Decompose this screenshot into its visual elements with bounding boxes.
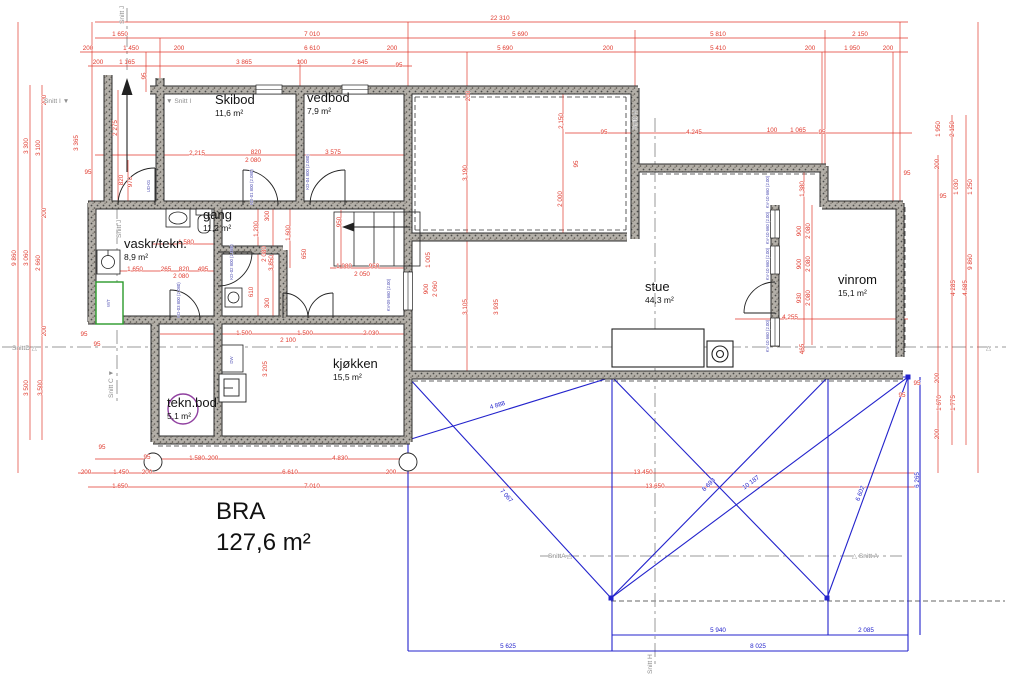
room-name: tekn.bod bbox=[167, 395, 217, 410]
dimension-label: 5 410 bbox=[710, 45, 726, 52]
section-marker-label: ▼ Snitt I bbox=[166, 98, 191, 105]
roof-node bbox=[906, 375, 911, 380]
dimension-label: 2 080 bbox=[805, 290, 812, 306]
dimension-label: 13 450 bbox=[633, 469, 653, 476]
dimension-label: 300 bbox=[264, 297, 271, 308]
dimension-label: 650 bbox=[301, 248, 308, 259]
roof-dimension-label: 8 025 bbox=[750, 643, 766, 650]
fixtures bbox=[96, 78, 780, 471]
section-marker-label: △ Snitt A bbox=[852, 553, 879, 560]
entry-arrow-icon bbox=[122, 78, 133, 172]
fixture-label: KV-10 660 (2.00) bbox=[765, 211, 770, 244]
dimension-label: 2 030 bbox=[363, 330, 379, 337]
dimension-label: 200 bbox=[603, 45, 614, 52]
dimension-label: 3 935 bbox=[493, 299, 500, 315]
dimension-label: 2 215 bbox=[189, 150, 205, 157]
dimension-label: 820 bbox=[179, 266, 190, 273]
dimension-label: 95 bbox=[98, 444, 106, 451]
fixture-label: UD-01 bbox=[146, 179, 151, 192]
dimension-label: 1 380 bbox=[799, 181, 806, 197]
dimension-label: 2 050 bbox=[354, 271, 370, 278]
dimension-label: 200 bbox=[142, 469, 153, 476]
dimension-label: 95 bbox=[141, 72, 148, 80]
dimension-label: 1 065 bbox=[790, 127, 806, 134]
section-marker-label: Snitt I ▼ bbox=[44, 98, 69, 105]
dimension-label: 200 bbox=[81, 469, 92, 476]
dimension-label: 1 650 bbox=[127, 266, 143, 273]
dimension-label: 1 950 bbox=[935, 121, 942, 137]
dimension-label: 1 450 bbox=[123, 45, 139, 52]
dimension-label: 5 690 bbox=[512, 31, 528, 38]
dimension-label: 3 300 bbox=[23, 138, 30, 154]
dimension-label: 900 bbox=[423, 283, 430, 294]
dimension-label: 2 060 bbox=[432, 281, 439, 297]
floor-plan-canvas: 22 3101 6507 0105 6905 8102 1502001 4502… bbox=[0, 0, 1011, 687]
room-area: 11,6 m² bbox=[215, 108, 243, 118]
dimension-label: 95 bbox=[573, 160, 580, 168]
dimension-label: 7 010 bbox=[304, 31, 320, 38]
dimension-label: 95 bbox=[898, 392, 906, 399]
fixture-label: W/T bbox=[106, 299, 111, 307]
dimension-label: 2 150 bbox=[558, 113, 565, 129]
dimension-label: 1 500 bbox=[236, 330, 252, 337]
dimension-label: 200 bbox=[934, 158, 941, 169]
bra-area-block: BRA 127,6 m² bbox=[216, 496, 311, 558]
dimension-label: 200 bbox=[83, 45, 94, 52]
dimension-label: 820 bbox=[251, 149, 262, 156]
dimension-label: 1 005 bbox=[425, 252, 432, 268]
room-area: 8,9 m² bbox=[124, 252, 148, 262]
dimension-label: 7 010 bbox=[304, 483, 320, 490]
dimension-label: 2 660 bbox=[35, 255, 42, 271]
dimension-label: 900 bbox=[796, 225, 803, 236]
dimension-label: 930 bbox=[796, 292, 803, 303]
dimension-label: 9 860 bbox=[967, 254, 974, 270]
section-marker-label: SnittA △ bbox=[548, 553, 573, 560]
dimension-label: 100 bbox=[297, 59, 308, 66]
room-area: 7,9 m² bbox=[307, 106, 331, 116]
dimension-label: 2 275 bbox=[112, 120, 119, 136]
dimension-label: 1 250 bbox=[967, 179, 974, 195]
dimension-label: 95 bbox=[913, 380, 921, 387]
fixture-label: KD-04 800 (2.080) bbox=[305, 154, 310, 190]
room-area: 11,2 m² bbox=[203, 223, 231, 233]
fixture-label: KD-01 800 (2.080) bbox=[249, 169, 254, 205]
kitchen-sink-icon bbox=[219, 374, 246, 402]
dimension-label: 465 bbox=[799, 343, 806, 354]
dimension-label: 1 580 bbox=[189, 455, 205, 462]
dimension-label: 3 100 bbox=[35, 140, 42, 156]
dimension-label: 200 bbox=[805, 45, 816, 52]
dimension-label: 2 080 bbox=[261, 246, 268, 262]
dimension-label: 6 610 bbox=[304, 45, 320, 52]
room-name: kjøkken bbox=[333, 356, 378, 371]
dimension-label: 200 bbox=[883, 45, 894, 52]
dimension-label: 2 080 bbox=[805, 223, 812, 239]
dimension-label: 200 bbox=[41, 325, 48, 336]
fixture-label: KV-09 660 (2.00) bbox=[386, 278, 391, 311]
dimension-label: 4 830 bbox=[332, 455, 348, 462]
dimension-label: 3 850 bbox=[268, 255, 275, 271]
fixture-label: KV-10 660 (2.00) bbox=[765, 247, 770, 280]
dimension-label: 200 bbox=[934, 428, 941, 439]
dimension-label: 950 bbox=[336, 216, 343, 227]
dimension-label: 95 bbox=[818, 129, 826, 136]
roof-dimension-label: 8 693 bbox=[701, 477, 717, 493]
dimension-label: 5 690 bbox=[497, 45, 513, 52]
dimension-label: 265 bbox=[161, 266, 172, 273]
dimension-label: 900 bbox=[796, 258, 803, 269]
fireplace bbox=[612, 329, 733, 367]
dimension-label: 4 285 bbox=[950, 280, 957, 296]
section-marker-label: Snitt H bbox=[647, 654, 654, 674]
dimension-label: 3 575 bbox=[325, 149, 341, 156]
dimension-label: 2 100 bbox=[280, 337, 296, 344]
section-marker-label: Snitt J bbox=[116, 220, 123, 238]
dimension-label: 300 bbox=[264, 210, 271, 221]
section-marker-label: △ bbox=[986, 345, 992, 352]
room-name: vedbod bbox=[307, 90, 350, 105]
dimension-label: 3 500 bbox=[23, 380, 30, 396]
dimension-label: 95 bbox=[93, 341, 101, 348]
room-area: 44,3 m² bbox=[645, 295, 674, 305]
room-area: 15,1 m² bbox=[838, 288, 867, 298]
floor-plan-drawing: 22 3101 6507 0105 6905 8102 1502001 4502… bbox=[0, 0, 1011, 687]
dimension-label: 100 bbox=[767, 127, 778, 134]
dimension-label: 1 670 bbox=[936, 395, 943, 411]
dimension-label: 3 865 bbox=[236, 59, 252, 66]
dimension-label: 95 bbox=[600, 129, 608, 136]
dimension-label: 3 060 bbox=[23, 250, 30, 266]
room-area: 15,5 m² bbox=[333, 372, 362, 382]
room-area: 5,1 m² bbox=[167, 411, 191, 421]
dimension-label: 2 150 bbox=[949, 121, 956, 137]
dimension-label: 1 450 bbox=[113, 469, 129, 476]
dimension-label: 22 310 bbox=[490, 15, 510, 22]
dimension-label: 950 bbox=[369, 263, 380, 270]
section-marker-label: Snitt C ▼ bbox=[108, 370, 115, 398]
room-name: Skibod bbox=[215, 92, 255, 107]
room-name: gang bbox=[203, 207, 232, 222]
dimension-label: 2 645 bbox=[352, 59, 368, 66]
dimension-label: 95 bbox=[939, 193, 947, 200]
fixture-label: KD-03 800 (2.080) bbox=[176, 282, 181, 318]
dimension-label: 2 080 bbox=[173, 273, 189, 280]
dimension-label: 5 810 bbox=[710, 31, 726, 38]
roof-dimension-label: 6 265 bbox=[914, 472, 921, 488]
dimension-label: 200 bbox=[174, 45, 185, 52]
roof-dimension-label: 2 085 bbox=[858, 627, 874, 634]
room-name: vinrom bbox=[838, 272, 877, 287]
bra-value: 127,6 m² bbox=[216, 527, 311, 558]
dimension-label: 1 775 bbox=[950, 395, 957, 411]
window-symbol bbox=[256, 85, 780, 346]
dimension-label: 200 bbox=[387, 45, 398, 52]
roof-node bbox=[825, 596, 830, 601]
dimension-label: 3 500 bbox=[37, 380, 44, 396]
dimension-label: 6 610 bbox=[282, 469, 298, 476]
dimension-label: 200 bbox=[93, 59, 104, 66]
dimension-label: 3 105 bbox=[462, 299, 469, 315]
dimension-label: 1 500 bbox=[297, 330, 313, 337]
fixture-label: KV-10 660 (2.00) bbox=[765, 319, 770, 352]
dimension-label: 200 bbox=[386, 469, 397, 476]
roof-node bbox=[609, 596, 614, 601]
dimension-label: 4 255 bbox=[782, 314, 798, 321]
dimension-label: 1 165 bbox=[119, 59, 135, 66]
dimension-label: 1 950 bbox=[844, 45, 860, 52]
dimension-label: 95 bbox=[143, 454, 151, 461]
dimension-label: 1 030 bbox=[953, 179, 960, 195]
section-marker-label: Snitt H bbox=[632, 110, 639, 130]
dimension-label: 3 205 bbox=[262, 361, 269, 377]
dimension-label: 2 150 bbox=[852, 31, 868, 38]
section-marker-label: SnittD △ bbox=[12, 345, 38, 352]
dimension-label: 95 bbox=[84, 169, 92, 176]
dimension-label: 1 600 bbox=[285, 225, 292, 241]
fixture-label: DW bbox=[229, 355, 234, 363]
dimension-label: 1 650 bbox=[112, 483, 128, 490]
room-name: stue bbox=[645, 279, 670, 294]
dimension-label: 1 650 bbox=[112, 31, 128, 38]
dimension-label: 4 245 bbox=[686, 129, 702, 136]
dimension-label: 820 bbox=[118, 174, 125, 185]
dimension-label: 4 685 bbox=[962, 280, 969, 296]
dimension-label: 1 080 bbox=[336, 263, 352, 270]
grid-bubble bbox=[399, 453, 417, 471]
dimension-label: 95 bbox=[395, 62, 403, 69]
dimension-label: 1 200 bbox=[253, 221, 260, 237]
roof-lines-blue bbox=[406, 375, 921, 652]
dimension-label: 200 bbox=[934, 372, 941, 383]
dimension-label: 495 bbox=[198, 266, 209, 273]
roof-dimension-label: 4 888 bbox=[489, 400, 507, 411]
dimension-label: 9 860 bbox=[11, 250, 18, 266]
dimension-label: 3 190 bbox=[462, 165, 469, 181]
fixture-label: KD-02 800 (2.080) bbox=[229, 244, 234, 280]
roof-dimension-label: 5 940 bbox=[710, 627, 726, 634]
section-marker-label: Snitt J bbox=[119, 6, 126, 24]
dimension-label: 200 bbox=[465, 90, 472, 101]
fixture-label: KV-10 660 (2.00) bbox=[765, 175, 770, 208]
dimension-label: 3 365 bbox=[73, 135, 80, 151]
dimension-label: 2 080 bbox=[245, 157, 261, 164]
sink-icon bbox=[166, 209, 190, 227]
dimension-label: 200 bbox=[41, 207, 48, 218]
dimension-label: 970 bbox=[127, 176, 134, 187]
dimension-label: 95 bbox=[80, 331, 88, 338]
roof-dimension-label: 5 625 bbox=[500, 643, 516, 650]
walls bbox=[88, 75, 903, 442]
room-name: vaskr/tekn. bbox=[124, 236, 187, 251]
dimension-label: 2 000 bbox=[557, 191, 564, 207]
dimension-label: 200 bbox=[208, 455, 219, 462]
dimension-label: 13 650 bbox=[645, 483, 665, 490]
washer-icon bbox=[225, 288, 242, 307]
dimension-label: 2 080 bbox=[805, 256, 812, 272]
dimension-label: 95 bbox=[903, 170, 911, 177]
utility-sink-icon bbox=[97, 250, 120, 274]
bra-label: BRA bbox=[216, 496, 311, 527]
dimension-label: 610 bbox=[248, 286, 255, 297]
